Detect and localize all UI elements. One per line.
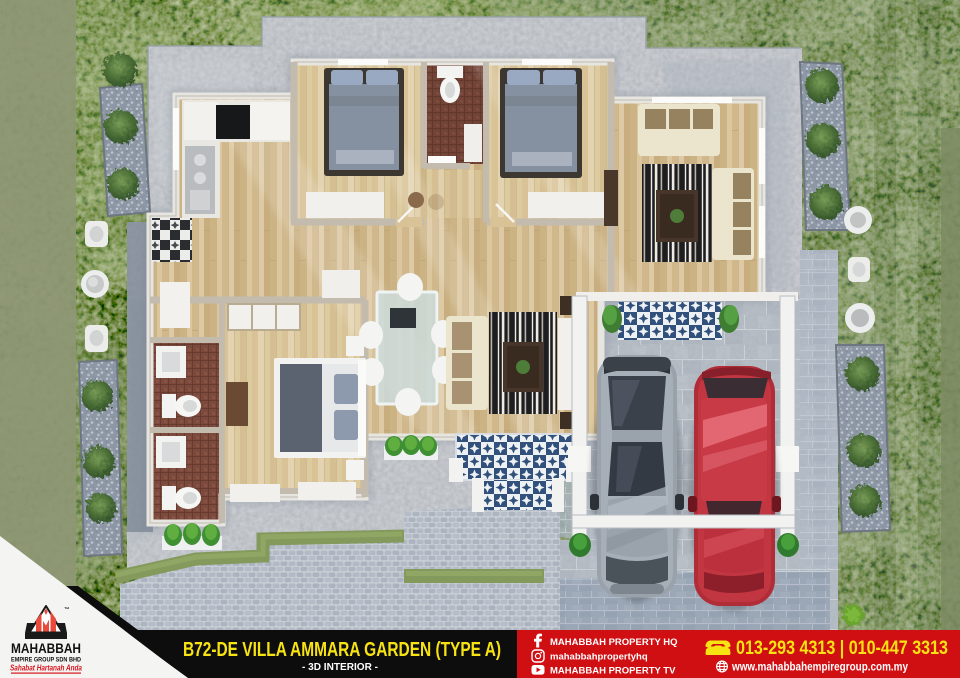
svg-text:B72-DE VILLA AMMARA GARDEN (TY: B72-DE VILLA AMMARA GARDEN (TYPE A) [183, 639, 501, 661]
svg-text:Sahabat Hartanah Anda: Sahabat Hartanah Anda [10, 664, 82, 673]
svg-text:www.mahabbahempiregroup.com.my: www.mahabbahempiregroup.com.my [731, 662, 908, 674]
svg-text:MAHABBAH: MAHABBAH [11, 641, 81, 656]
svg-text:013-293 4313 | 010-447 3313: 013-293 4313 | 010-447 3313 [736, 638, 948, 659]
svg-text:MAHABBAH PROPERTY TV: MAHABBAH PROPERTY TV [550, 666, 676, 677]
svg-text:MAHABBAH PROPERTY HQ: MAHABBAH PROPERTY HQ [550, 637, 678, 648]
svg-text:EMPIRE GROUP SDN BHD: EMPIRE GROUP SDN BHD [11, 657, 81, 664]
svg-text:mahabbahpropertyhq: mahabbahpropertyhq [550, 652, 648, 663]
svg-text:™: ™ [64, 607, 70, 613]
svg-text:- 3D INTERIOR -: - 3D INTERIOR - [302, 662, 378, 673]
